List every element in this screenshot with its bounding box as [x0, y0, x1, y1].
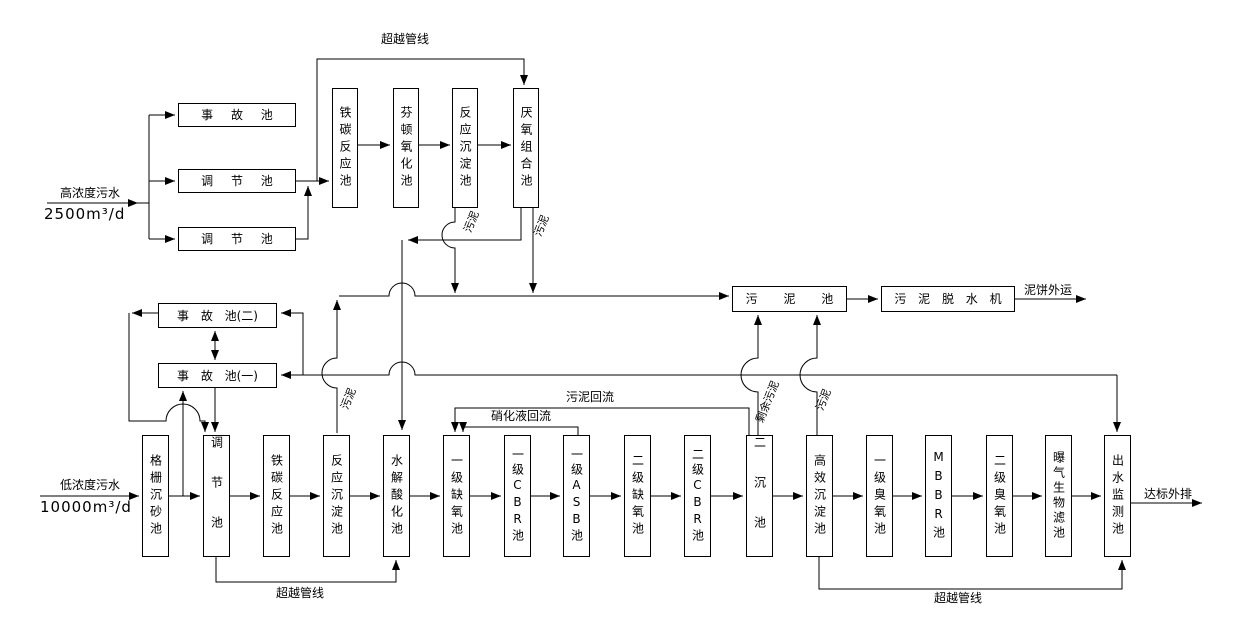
aerated-biofilter: 曝气生物滤池	[1045, 435, 1072, 557]
fenton-oxidation-tank: 芬顿氧化池	[393, 88, 419, 208]
inlet-high-flowrate: 2500m³/d	[44, 206, 125, 223]
sludge-tank: 污 泥 池	[732, 286, 847, 312]
discharge-label: 达标外排	[1138, 488, 1198, 501]
sludge-dewatering-machine: 污 泥 脱 水 机	[881, 286, 1015, 312]
regulating-tank-top-2: 调 节 池	[178, 227, 296, 251]
hydrolysis-acidification-tank: 水解酸化池	[383, 435, 410, 557]
bypass-low-label: 超越管线	[272, 587, 328, 600]
inlet-low-label: 低浓度污水	[52, 479, 128, 492]
emergency-tank-2: 事 故 池(二)	[158, 303, 277, 328]
reaction-sedimentation-tank: 反应沉淀池	[323, 435, 350, 557]
iron-carbon-reactor-top: 铁碳反应池	[332, 88, 358, 208]
primary-cbr-tank: 一级CBR池	[504, 435, 531, 557]
anaerobic-combined-tank: 厌氧组合池	[513, 88, 539, 208]
mbbr-tank: MBBR池	[925, 435, 952, 557]
inlet-low-flowrate: 10000m³/d	[40, 499, 132, 516]
bypass-out-label: 超越管线	[930, 592, 986, 605]
primary-anoxic-tank: 一级缺氧池	[443, 435, 470, 557]
nitrified-liquid-return-label: 硝化液回流	[486, 410, 556, 423]
process-flow-diagram: 高浓度污水 2500m³/d 低浓度污水 10000m³/d 事 故 池 调 节…	[0, 0, 1243, 641]
primary-asb-tank: 一级ASB池	[563, 435, 590, 557]
accident-tank-top: 事 故 池	[178, 103, 296, 127]
secondary-cbr-tank: 二级CBR池	[684, 435, 711, 557]
secondary-sedimentation-tank: 二沉池	[746, 435, 773, 557]
sludge-cake-out-label: 泥饼外运	[1020, 284, 1076, 297]
reaction-sedimentation-tank-top: 反应沉淀池	[452, 88, 478, 208]
secondary-anoxic-tank: 二级缺氧池	[624, 435, 651, 557]
primary-ozone-tank: 一级臭氧池	[866, 435, 893, 557]
regulating-tank-top-1: 调 节 池	[178, 169, 296, 193]
regulating-tank: 调节池	[203, 435, 230, 557]
secondary-ozone-tank: 二级臭氧池	[986, 435, 1013, 557]
grid-grit-chamber: 格栅沉砂池	[142, 435, 169, 557]
emergency-tank-1: 事 故 池(一)	[158, 363, 277, 388]
effluent-monitoring-tank: 出水监测池	[1104, 435, 1131, 557]
high-efficiency-sedimentation-tank: 高效沉淀池	[806, 435, 833, 557]
sludge-return-label: 污泥回流	[562, 391, 618, 404]
iron-carbon-reactor: 铁碳反应池	[263, 435, 290, 557]
bypass-top-label: 超越管线	[375, 33, 435, 46]
inlet-high-label: 高浓度污水	[52, 187, 128, 200]
